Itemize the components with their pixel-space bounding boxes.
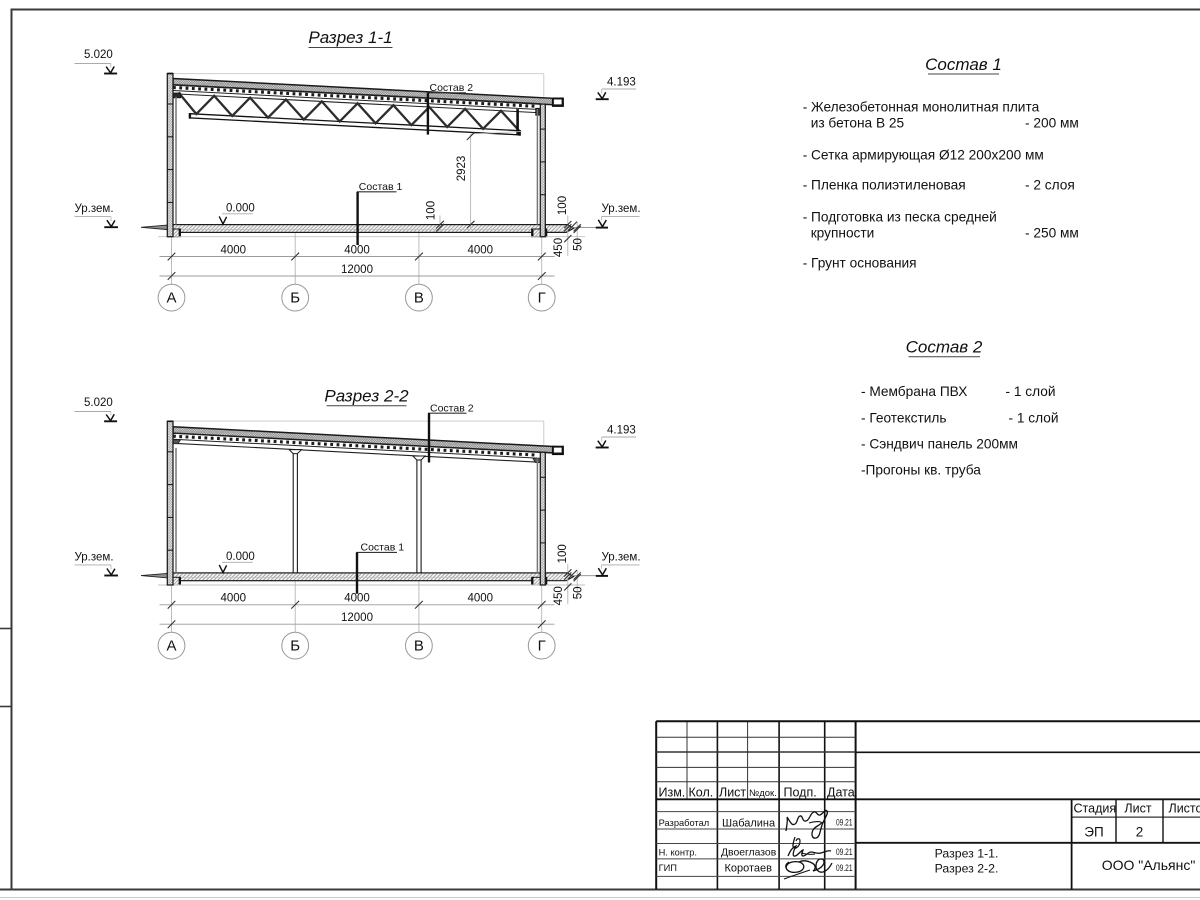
svg-text:- 200 мм: - 200 мм bbox=[1025, 116, 1079, 131]
svg-text:100: 100 bbox=[557, 196, 569, 215]
svg-text:4000: 4000 bbox=[468, 244, 494, 256]
svg-text:5.020: 5.020 bbox=[84, 397, 113, 409]
svg-text:Состав 2: Состав 2 bbox=[430, 402, 474, 414]
svg-text:Дата: Дата bbox=[827, 785, 855, 799]
svg-text:4000: 4000 bbox=[344, 244, 370, 256]
svg-text:100: 100 bbox=[426, 201, 438, 220]
svg-text:А: А bbox=[166, 290, 176, 307]
svg-text:09.21: 09.21 bbox=[836, 818, 853, 828]
svg-text:Б: Б bbox=[290, 290, 300, 307]
svg-text:Лист: Лист bbox=[1124, 802, 1151, 816]
svg-text:Ур.зем.: Ур.зем. bbox=[75, 203, 114, 215]
svg-text:Шабалина: Шабалина bbox=[722, 817, 776, 829]
svg-text:Листов: Листов bbox=[1169, 802, 1200, 816]
svg-text:Г: Г bbox=[538, 638, 546, 655]
svg-text:Разработал: Разработал bbox=[659, 818, 710, 828]
svg-text:Ур.зем.: Ур.зем. bbox=[75, 552, 114, 564]
svg-text:- Пленка полиэтиленовая: - Пленка полиэтиленовая bbox=[803, 177, 966, 192]
svg-text:450: 450 bbox=[553, 238, 565, 257]
svg-text:5.020: 5.020 bbox=[84, 49, 113, 61]
svg-text:В: В bbox=[414, 638, 424, 655]
svg-text:4000: 4000 bbox=[221, 244, 247, 256]
svg-text:Разрез 1-1: Разрез 1-1 bbox=[308, 28, 392, 47]
svg-text:Состав 2: Состав 2 bbox=[906, 338, 983, 357]
svg-text:Разрез 1-1.: Разрез 1-1. bbox=[935, 847, 999, 861]
svg-text:100: 100 bbox=[557, 544, 569, 563]
svg-text:Состав 2: Состав 2 bbox=[430, 82, 474, 94]
svg-text:- Сэндвич панель 200мм: - Сэндвич панель 200мм bbox=[861, 437, 1018, 452]
svg-text:- 1 слой: - 1 слой bbox=[1009, 410, 1059, 425]
svg-text:Состав 1: Состав 1 bbox=[361, 541, 405, 553]
svg-text:Б: Б bbox=[290, 638, 300, 655]
svg-text:- Сетка армирующая Ø12 200х200: - Сетка армирующая Ø12 200х200 мм bbox=[803, 147, 1044, 162]
svg-text:крупности: крупности bbox=[811, 226, 875, 241]
svg-text:50: 50 bbox=[572, 238, 584, 251]
svg-text:ООО "Альянс": ООО "Альянс" bbox=[1102, 857, 1196, 873]
svg-text:Изм.: Изм. bbox=[659, 785, 686, 799]
svg-text:- Грунт основания: - Грунт основания bbox=[803, 256, 917, 271]
svg-text:12000: 12000 bbox=[341, 264, 373, 276]
svg-text:- 2 слоя: - 2 слоя bbox=[1025, 177, 1075, 192]
svg-text:- 1 слой: - 1 слой bbox=[1006, 384, 1056, 399]
svg-text:В: В bbox=[414, 290, 424, 307]
svg-text:Стадия: Стадия bbox=[1074, 802, 1117, 816]
svg-text:0.000: 0.000 bbox=[226, 551, 255, 563]
svg-text:Разрез 2-2: Разрез 2-2 bbox=[324, 387, 409, 406]
svg-text:Н. контр.: Н. контр. bbox=[659, 847, 697, 857]
svg-text:4000: 4000 bbox=[221, 593, 247, 605]
svg-text:0.000: 0.000 bbox=[226, 203, 255, 215]
svg-text:Коротаев: Коротаев bbox=[725, 862, 773, 874]
svg-text:- Подготовка из песка средней: - Подготовка из песка средней bbox=[803, 209, 997, 224]
svg-text:№док.: №док. bbox=[749, 788, 777, 799]
svg-text:из бетона В 25: из бетона В 25 bbox=[811, 116, 905, 131]
svg-text:50: 50 bbox=[572, 586, 584, 599]
svg-text:09.21: 09.21 bbox=[836, 863, 853, 873]
svg-text:Ур.зем.: Ур.зем. bbox=[602, 203, 641, 215]
svg-text:Состав 1: Состав 1 bbox=[359, 181, 403, 193]
svg-text:4000: 4000 bbox=[468, 593, 494, 605]
svg-text:Ур.зем.: Ур.зем. bbox=[602, 552, 641, 564]
svg-text:2: 2 bbox=[1136, 825, 1144, 840]
svg-text:-Прогоны кв. труба: -Прогоны кв. труба bbox=[861, 463, 981, 478]
svg-text:12000: 12000 bbox=[341, 612, 373, 624]
svg-text:Двоеглазов: Двоеглазов bbox=[721, 848, 777, 859]
svg-text:Подп.: Подп. bbox=[784, 785, 817, 799]
svg-text:09.21: 09.21 bbox=[836, 847, 853, 857]
svg-text:Кол.: Кол. bbox=[689, 785, 714, 799]
svg-text:Г: Г bbox=[538, 290, 546, 307]
svg-text:ЭП: ЭП bbox=[1084, 825, 1103, 840]
svg-text:4000: 4000 bbox=[344, 593, 370, 605]
svg-text:450: 450 bbox=[553, 586, 565, 605]
svg-text:Состав 1: Состав 1 bbox=[925, 55, 1002, 74]
svg-text:А: А bbox=[166, 638, 176, 655]
svg-text:2923: 2923 bbox=[456, 156, 468, 182]
svg-text:- 250 мм: - 250 мм bbox=[1025, 226, 1079, 241]
svg-text:- Геотекстиль: - Геотекстиль bbox=[861, 410, 947, 425]
svg-text:- Мембрана ПВХ: - Мембрана ПВХ bbox=[861, 384, 967, 399]
svg-text:Лист: Лист bbox=[719, 785, 746, 799]
svg-text:Разрез 2-2.: Разрез 2-2. bbox=[935, 861, 999, 875]
svg-text:- Железобетонная монолитная п: - Железобетонная монолитная плита bbox=[803, 100, 1040, 115]
svg-text:4.193: 4.193 bbox=[607, 425, 636, 437]
svg-text:ГИП: ГИП bbox=[659, 863, 677, 873]
svg-text:4.193: 4.193 bbox=[607, 77, 636, 89]
